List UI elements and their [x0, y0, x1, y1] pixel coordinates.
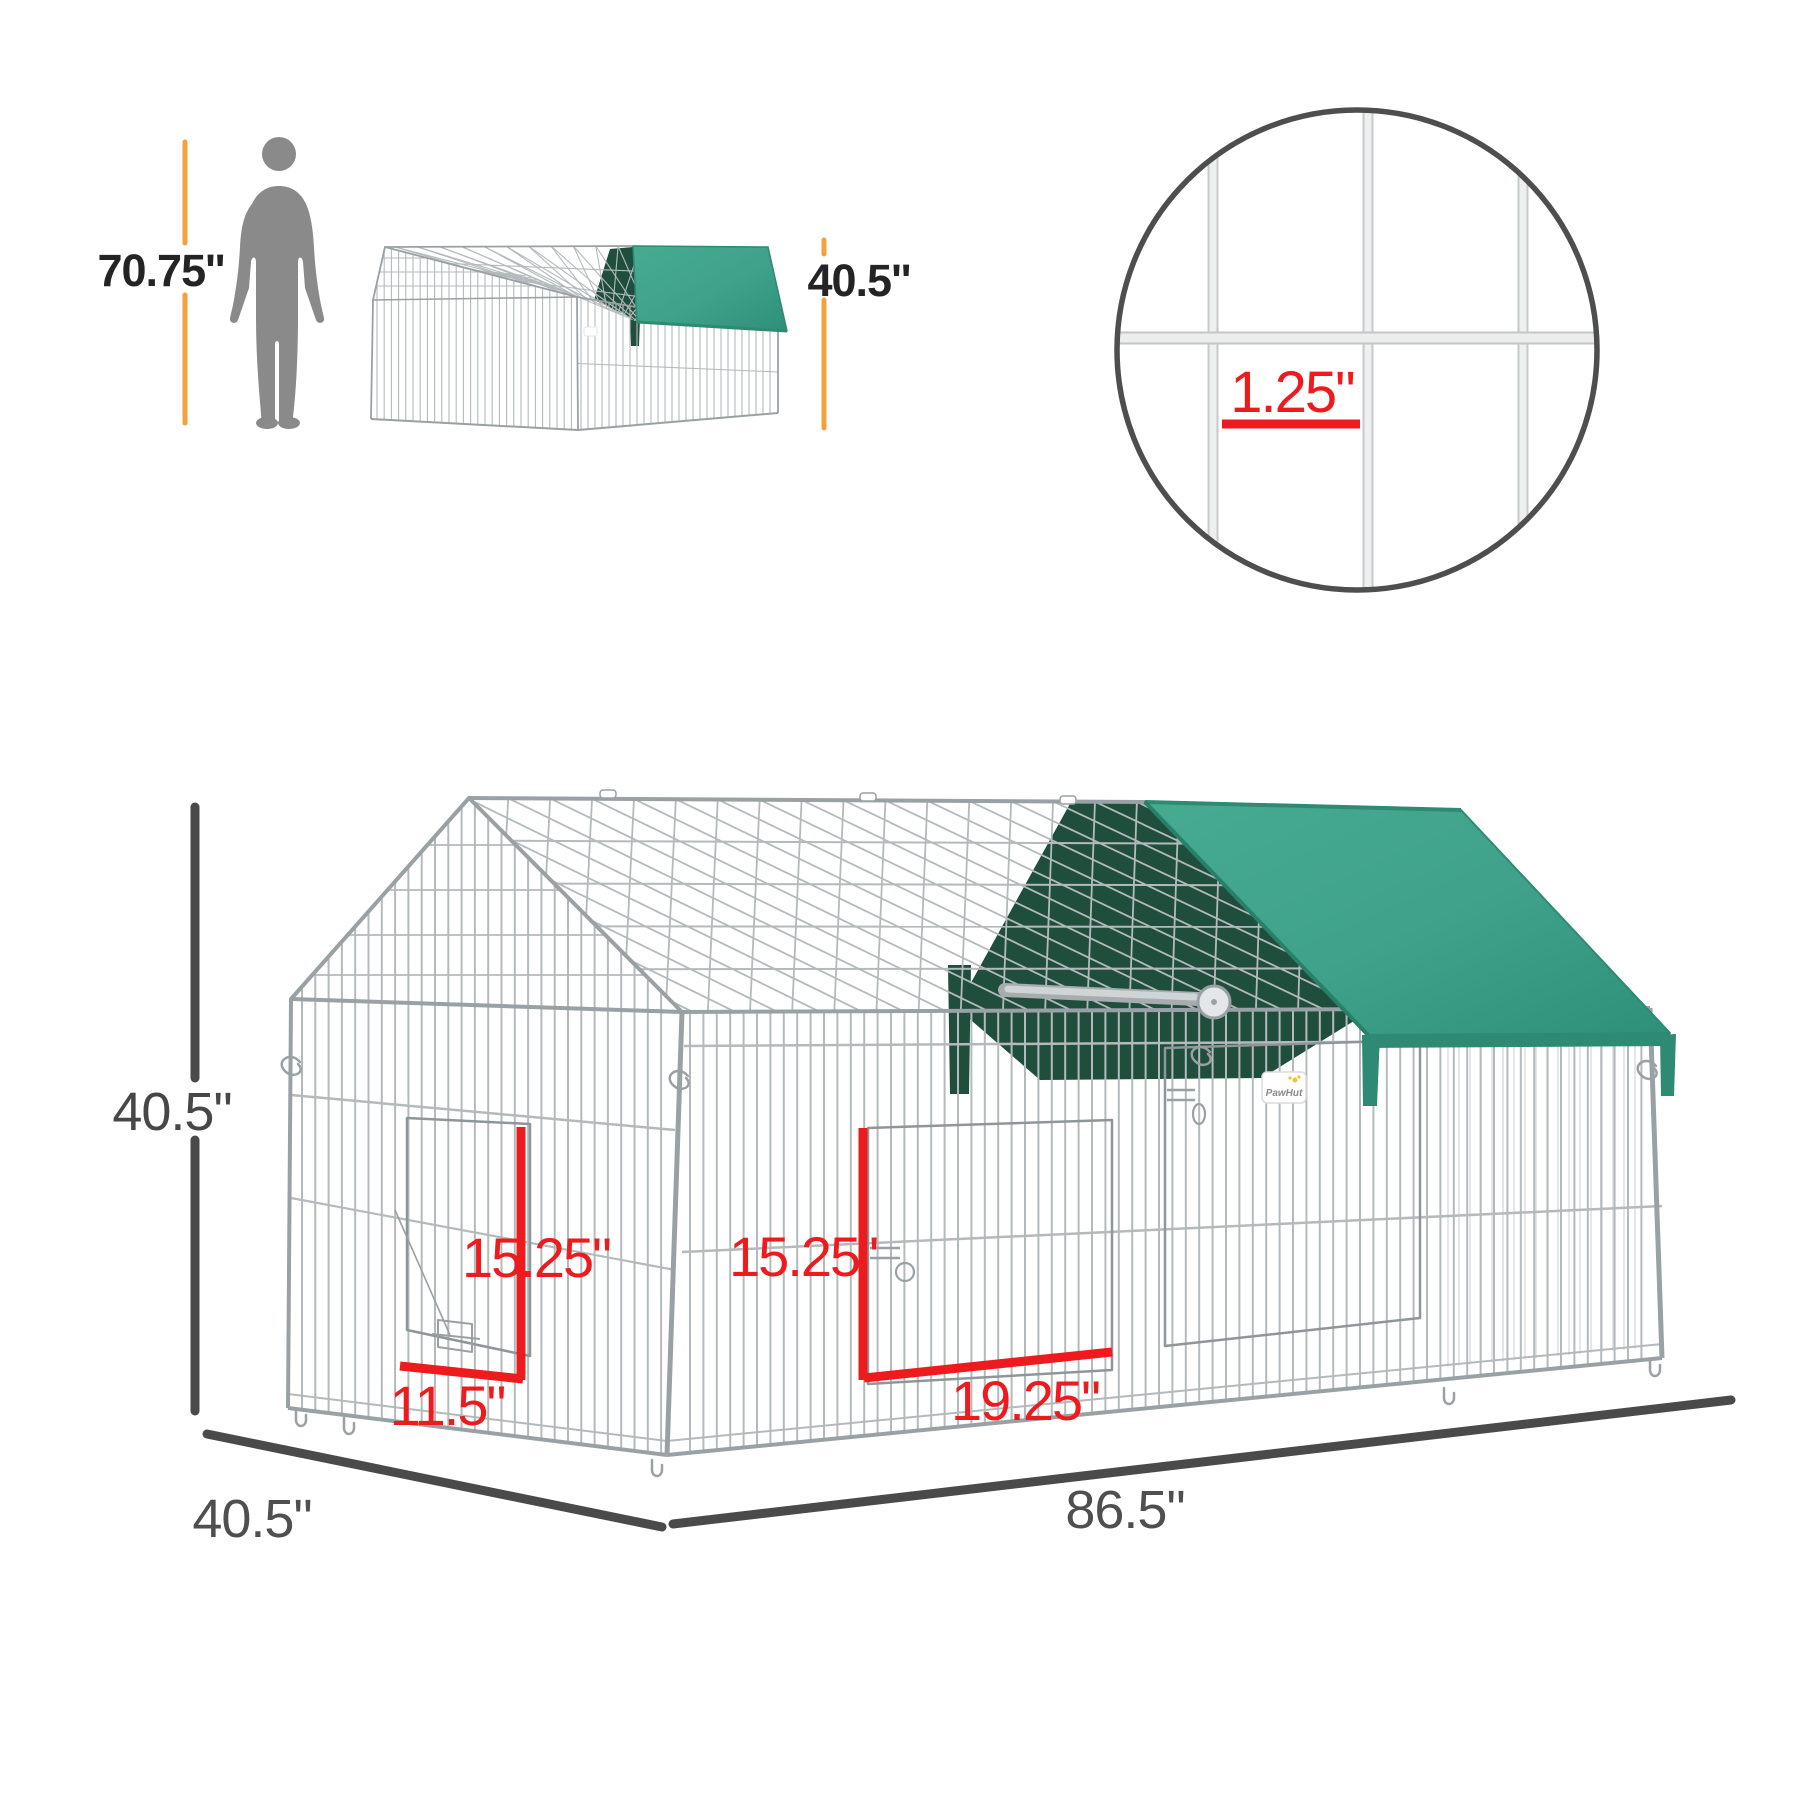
mesh-detail-wires	[1110, 105, 1605, 600]
front-door-width-label: 19.25"	[951, 1369, 1099, 1432]
pet-enclosure-dimension-infographic: 70.75'' 40.5'' 1.25" PawHut	[0, 0, 1800, 1800]
small-cage-thumbnail	[261, 246, 787, 430]
cage-depth-label: 40.5"	[192, 1489, 311, 1549]
left-gable-end-mesh	[288, 798, 682, 1455]
thumb-height-label: 40.5''	[808, 255, 911, 306]
cage-length-label: 86.5"	[1065, 1480, 1184, 1540]
front-door-dimension-lines	[863, 1128, 1112, 1380]
wire-spacing-label: 1.25"	[1230, 360, 1354, 425]
mesh-detail-circle: 1.25"	[1110, 105, 1605, 600]
brand-tag: PawHut	[1262, 1072, 1306, 1103]
person-height-label: 70.75''	[97, 245, 224, 296]
front-door-height-label: 15.25"	[729, 1225, 877, 1288]
cage-length-line	[673, 1400, 1731, 1524]
brand-tag-label: PawHut	[1266, 1088, 1303, 1099]
diagram-scene: 70.75'' 40.5'' 1.25" PawHut	[0, 0, 1800, 1800]
person-silhouette-icon	[230, 137, 324, 429]
left-door-width-label: 11.5"	[390, 1374, 505, 1437]
scale-reference-group: 70.75'' 40.5''	[97, 137, 910, 429]
cage-height-label: 40.5"	[112, 1082, 231, 1142]
left-door-height-label: 15.25"	[462, 1226, 610, 1289]
